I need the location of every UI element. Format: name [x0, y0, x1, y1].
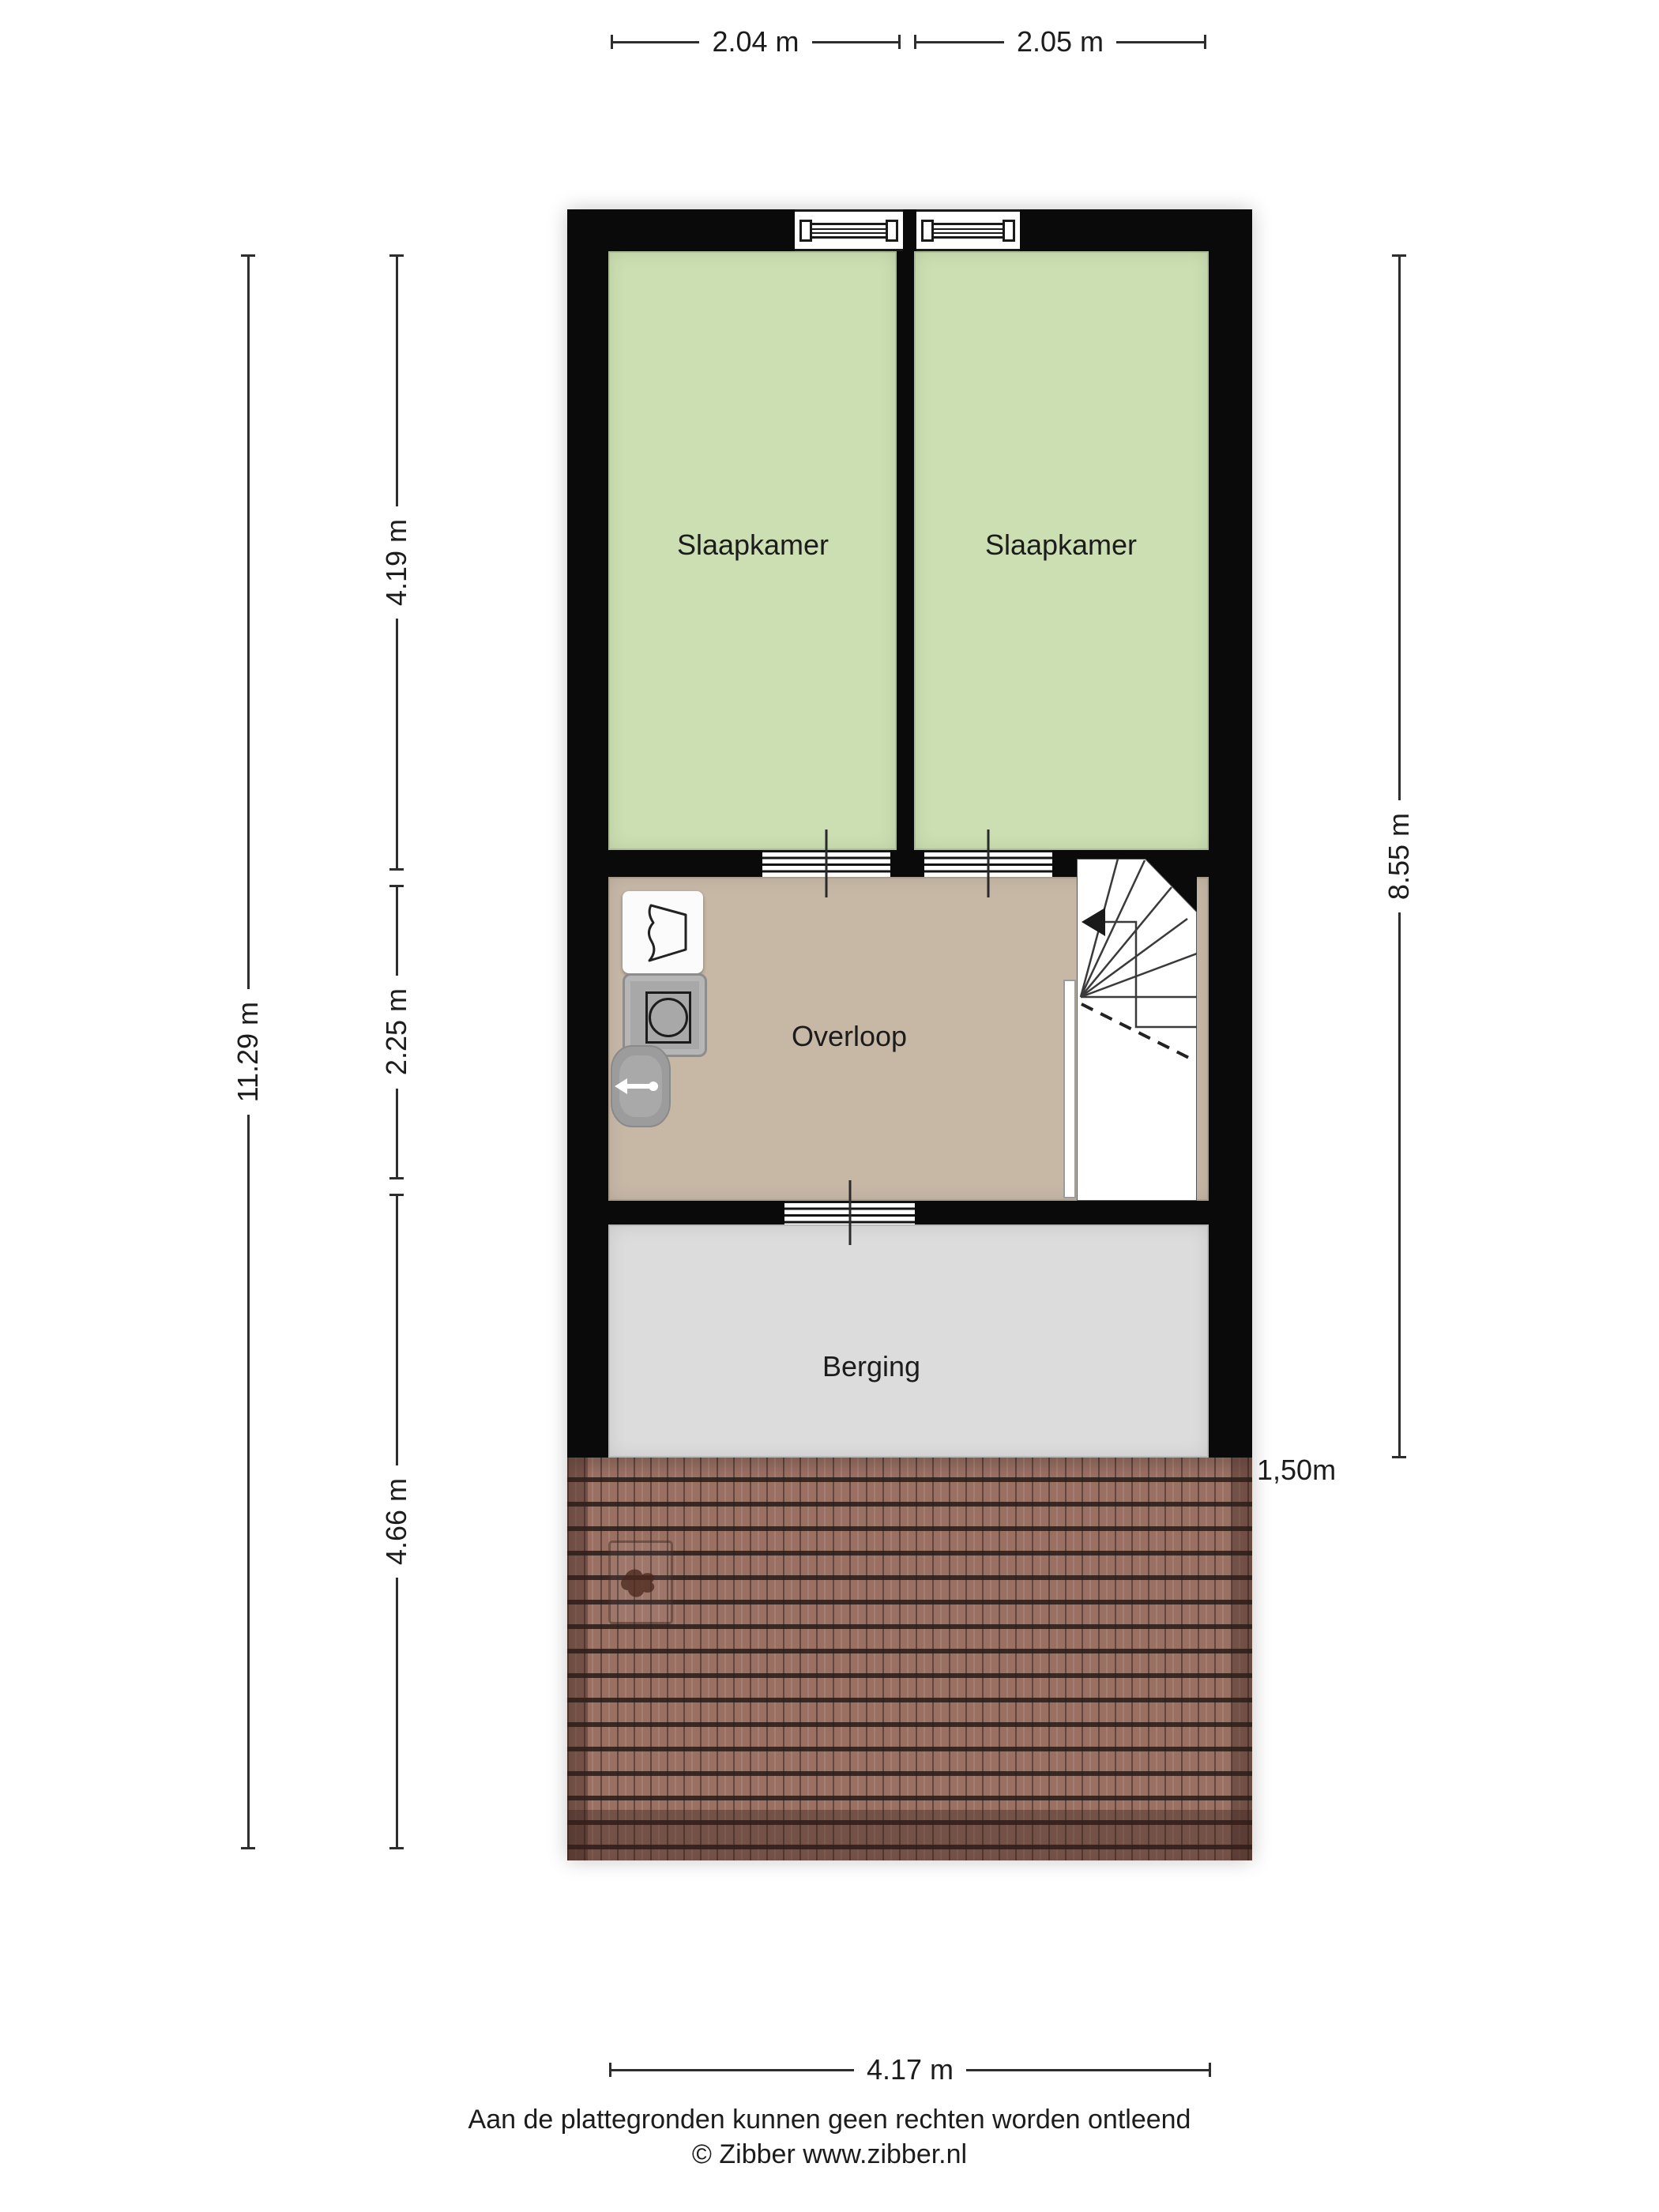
door-leaf-line: [848, 1180, 851, 1245]
dim-line: [396, 1089, 398, 1177]
dim-tick: [241, 1847, 255, 1849]
dim-line: [966, 2069, 1209, 2071]
dimension-label: 4.19 m: [382, 506, 411, 619]
dim-line: [396, 619, 398, 868]
dimension-label: 2.05 m: [1004, 28, 1116, 56]
dryer-icon: [623, 891, 703, 973]
dim-tick: [898, 35, 901, 49]
dim-line: [396, 887, 398, 976]
dimension-left-landing: 2.25 m: [381, 885, 412, 1179]
dim-line: [247, 1115, 250, 1847]
window-jamb: [886, 220, 898, 242]
window-jamb: [799, 220, 812, 242]
dimension-label: 4.17 m: [854, 2056, 966, 2084]
door-berging: [784, 1201, 915, 1224]
dimension-label: 2.04 m: [699, 28, 811, 56]
dim-tick: [389, 1177, 404, 1179]
room-berging: [608, 1224, 1209, 1458]
roof-vent-glyph: [611, 1543, 666, 1617]
door-slaapkamer-left: [762, 850, 890, 877]
dim-tick: [389, 1847, 404, 1849]
roof-edge-shading: [567, 1458, 1252, 1860]
window-glazing: [811, 223, 887, 239]
room-label-overloop: Overloop: [792, 1020, 907, 1053]
dim-line: [611, 2069, 854, 2071]
dimension-left-total: 11.29 m: [232, 254, 264, 1849]
dim-tick: [389, 868, 404, 871]
door-leaf-line: [826, 829, 828, 897]
sink-icon: [608, 1041, 673, 1131]
dim-tick: [1209, 2063, 1211, 2077]
roof: [567, 1458, 1252, 1860]
staircase-drawing: [1077, 859, 1197, 1201]
stair-balustrade: [1063, 980, 1076, 1198]
dim-line: [1398, 912, 1401, 1456]
room-label-slaapkamer-right: Slaapkamer: [985, 529, 1137, 562]
dim-tick: [1204, 35, 1206, 49]
dimension-label: 11.29 m: [234, 989, 262, 1115]
dim-line: [396, 1196, 398, 1465]
dimension-label: 2.25 m: [382, 976, 411, 1088]
room-label-slaapkamer-left: Slaapkamer: [677, 529, 829, 562]
dim-line: [396, 257, 398, 506]
dim-line: [396, 1578, 398, 1847]
dimension-label: 4.66 m: [382, 1465, 411, 1578]
window-left: [795, 209, 903, 251]
dim-line: [247, 257, 250, 989]
dim-tick: [1392, 1456, 1406, 1458]
dryer: [623, 891, 703, 973]
floorplan-page: 2.04 m 2.05 m 11.29 m 4.19 m 2.25 m 4.66…: [0, 0, 1659, 2212]
roof-height-marker: 1,50m: [1257, 1454, 1336, 1487]
dim-line: [812, 41, 898, 43]
roof-window-icon: [608, 1540, 673, 1624]
footer-copyright: © Zibber www.zibber.nl: [0, 2139, 1659, 2170]
sink: [608, 1041, 673, 1131]
dimension-right-total: 8.55 m: [1383, 254, 1415, 1458]
dim-line: [916, 41, 1004, 43]
window-jamb: [1003, 220, 1015, 242]
room-label-berging: Berging: [822, 1350, 920, 1383]
dim-line: [613, 41, 699, 43]
dim-line: [1116, 41, 1204, 43]
dimension-label: 8.55 m: [1385, 800, 1413, 912]
dim-line: [1398, 257, 1401, 800]
staircase: [1077, 859, 1197, 1201]
dimension-top-left: 2.04 m: [611, 26, 901, 58]
dimension-left-storage: 4.66 m: [381, 1194, 412, 1849]
door-slaapkamer-right: [924, 850, 1052, 877]
window-jamb: [921, 220, 934, 242]
washing-machine-drum: [649, 998, 688, 1037]
door-leaf-line: [987, 829, 990, 897]
dimension-top-right: 2.05 m: [914, 26, 1206, 58]
dimension-bottom: 4.17 m: [609, 2054, 1211, 2086]
window-right: [916, 209, 1020, 251]
window-glazing: [932, 223, 1004, 239]
washing-machine-icon: [645, 991, 691, 1044]
floorplan-drawing: Slaapkamer Slaapkamer Overloop Berging: [567, 209, 1252, 1860]
dimension-left-bedrooms: 4.19 m: [381, 254, 412, 871]
footer-disclaimer: Aan de plattegronden kunnen geen rechten…: [0, 2105, 1659, 2135]
